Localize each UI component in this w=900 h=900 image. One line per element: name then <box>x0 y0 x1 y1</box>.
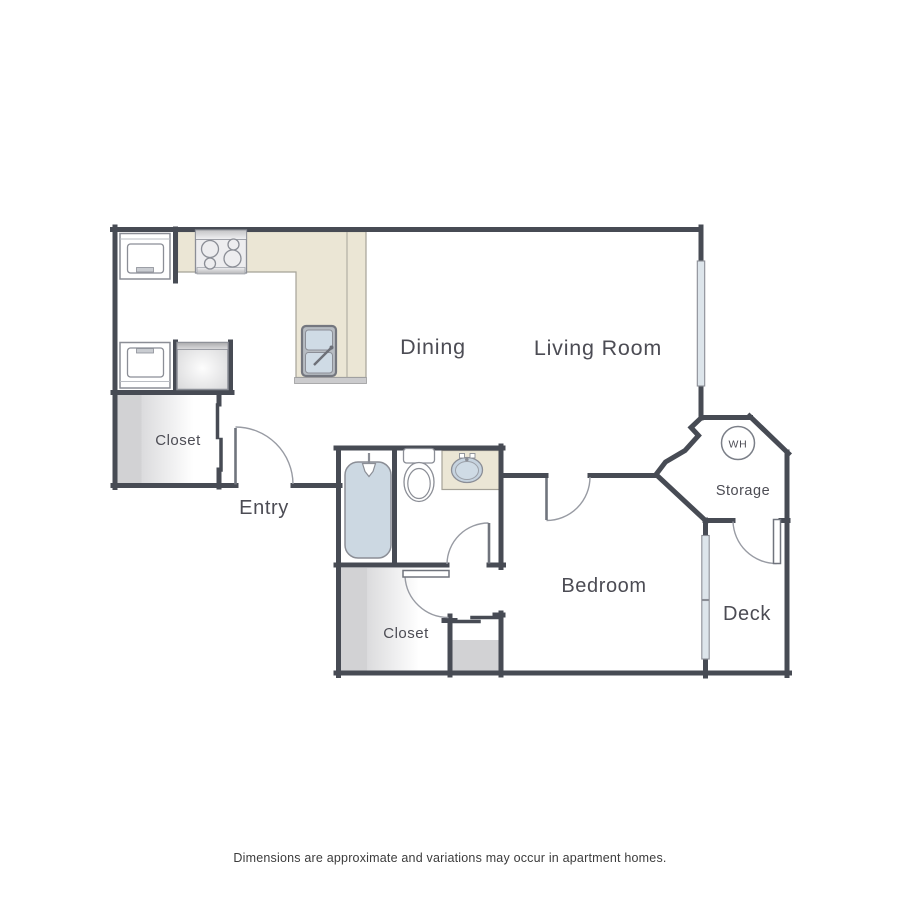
faucet-knob <box>330 346 334 350</box>
label-storage: Storage <box>716 483 770 499</box>
burner <box>224 250 241 267</box>
label-closet-upper: Closet <box>155 432 201 449</box>
closet-door-leaf <box>403 571 449 578</box>
disclaimer-text: Dimensions are approximate and variation… <box>233 851 666 865</box>
living-room-window <box>697 261 704 386</box>
refrigerator-handle <box>137 268 154 273</box>
water-heater-label: WH <box>728 439 747 451</box>
windows <box>697 261 709 659</box>
bathtub <box>345 453 391 558</box>
linen-closet-shade <box>453 640 500 673</box>
sink-handle <box>460 454 465 459</box>
counter-end-cap <box>295 378 367 384</box>
bathroom-door-arc <box>447 523 489 564</box>
burner <box>202 241 219 258</box>
toilet <box>404 449 435 502</box>
bedroom-door-arc <box>547 477 591 521</box>
floor-plan: WH Dining Living Room Entry Bedroom Clos… <box>0 0 900 900</box>
bedroom-closet-shade-fade <box>367 568 419 671</box>
label-living-room: Living Room <box>534 336 662 360</box>
storage-door-leaf <box>774 520 781 564</box>
label-deck: Deck <box>723 603 771 625</box>
kitchen-sink <box>302 326 336 376</box>
burner <box>228 239 239 250</box>
dishwasher-handle <box>137 349 154 354</box>
sink-faucet <box>465 458 469 462</box>
stove-range <box>196 230 247 274</box>
storage-door-arc <box>733 522 777 564</box>
toilet-tank <box>404 449 435 464</box>
water-heater: WH <box>722 427 755 460</box>
deck-window-lower <box>702 601 709 660</box>
deck-window-upper <box>702 536 709 600</box>
label-bedroom: Bedroom <box>561 575 646 597</box>
sink-handle <box>470 454 475 459</box>
storage-zigzag-wall <box>656 418 707 522</box>
door-arcs <box>236 427 777 618</box>
label-dining: Dining <box>400 335 466 359</box>
burner <box>205 258 216 269</box>
bathroom-fixtures <box>345 449 483 559</box>
dishwasher <box>120 343 170 389</box>
floor-plan-page: WH Dining Living Room Entry Bedroom Clos… <box>0 0 900 900</box>
washer-dryer <box>177 343 228 390</box>
entry-closet-shade <box>118 395 142 483</box>
doors <box>236 427 781 618</box>
entry-door-arc <box>236 427 294 484</box>
bedroom-closet-shade <box>341 568 367 671</box>
label-entry: Entry <box>239 497 289 519</box>
toilet-seat <box>408 469 430 499</box>
label-closet-lower: Closet <box>383 625 429 642</box>
refrigerator <box>120 234 170 280</box>
